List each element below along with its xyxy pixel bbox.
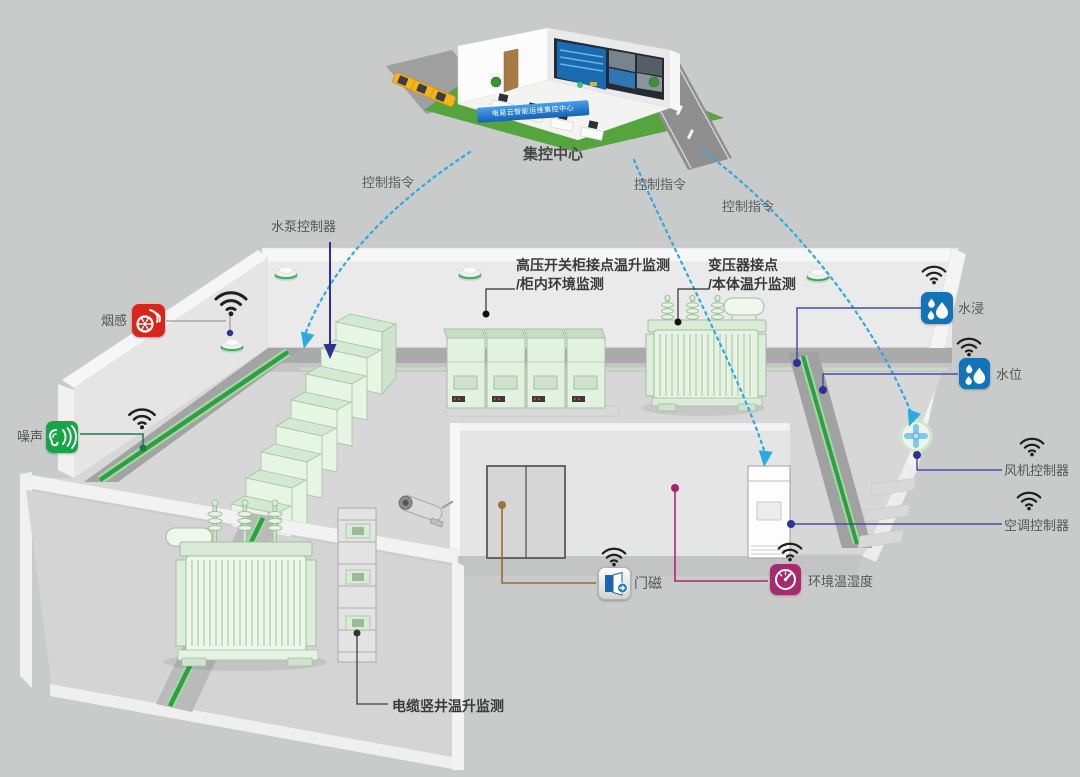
switchgear-row	[444, 329, 618, 416]
cable-shaft-label: 电缆竖井温升监测	[392, 697, 504, 716]
wifi-icon-smoke	[211, 285, 251, 317]
water-level-sensor-icon	[959, 358, 990, 389]
fan-vent	[901, 421, 931, 451]
wifi-icon-noise	[125, 403, 159, 430]
fan-connector	[917, 458, 1002, 470]
entry-door	[487, 466, 565, 558]
pump-controller-label: 水泵控制器	[271, 219, 336, 235]
open-door-glyph	[599, 568, 630, 599]
flood-label: 水浸	[958, 301, 984, 317]
smoke-sensor-icon	[132, 304, 165, 337]
ear-sound-glyph	[46, 421, 78, 453]
water-drops-glyph	[959, 358, 990, 389]
wifi-icon-flood	[919, 261, 949, 285]
water-drops-glyph	[921, 292, 953, 324]
wifi-icon-door-magnet	[599, 543, 629, 567]
hv-switchgear-label-line2: /柜内环境监测	[516, 275, 670, 294]
env-temp-humidity-icon	[770, 564, 801, 595]
diagram-stage: 集控中心 电易云智能运维集控中心 控制指令 控制指令 控制指令 水泵控制器 高压…	[0, 0, 1080, 777]
ac-controller-label: 空调控制器	[1004, 518, 1069, 534]
command-label-middle: 控制指令	[634, 177, 686, 193]
wifi-icon-fan-controller	[1017, 433, 1047, 457]
smoke-detector-glyph	[132, 304, 165, 337]
door-magnet-label: 门磁	[634, 575, 662, 592]
wifi-icon-water-level	[954, 333, 984, 357]
noise-label: 噪声	[17, 429, 43, 445]
hv-switchgear-label-line1: 高压开关柜接点温升监测	[516, 256, 670, 275]
command-label-right: 控制指令	[722, 199, 774, 215]
smoke-label: 烟感	[101, 313, 127, 329]
env-temp-humidity-label: 环境温湿度	[808, 574, 873, 590]
transformer-label: 变压器接点 /本体温升监测	[708, 256, 796, 294]
door-magnet-icon	[598, 567, 631, 600]
wifi-icon-env	[775, 538, 805, 562]
wifi-icon-ac-controller	[1014, 487, 1044, 511]
noise-sensor-icon	[46, 421, 78, 453]
hv-switchgear-label: 高压开关柜接点温升监测 /柜内环境监测	[516, 256, 670, 294]
transformer-label-line1: 变压器接点	[708, 256, 796, 275]
gauge-glyph	[770, 564, 801, 595]
flood-sensor-icon	[921, 292, 953, 324]
water-level-label: 水位	[996, 367, 1022, 383]
transformer-label-line2: /本体温升监测	[708, 275, 796, 294]
command-label-left: 控制指令	[362, 175, 414, 191]
fan-controller-label: 风机控制器	[1004, 463, 1069, 479]
control-center-label: 集控中心	[498, 146, 608, 164]
